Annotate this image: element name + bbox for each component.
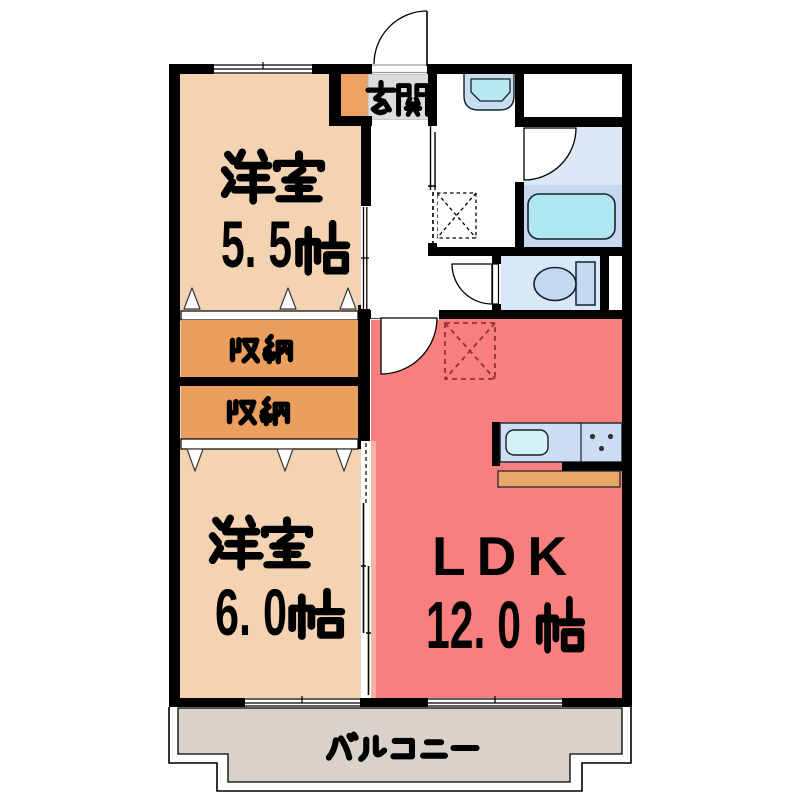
- svg-text:12. 0: 12. 0: [426, 588, 521, 663]
- svg-text:5. 5: 5. 5: [221, 207, 292, 281]
- svg-text:6. 0: 6. 0: [215, 575, 287, 649]
- svg-text:LDK: LDK: [432, 525, 578, 587]
